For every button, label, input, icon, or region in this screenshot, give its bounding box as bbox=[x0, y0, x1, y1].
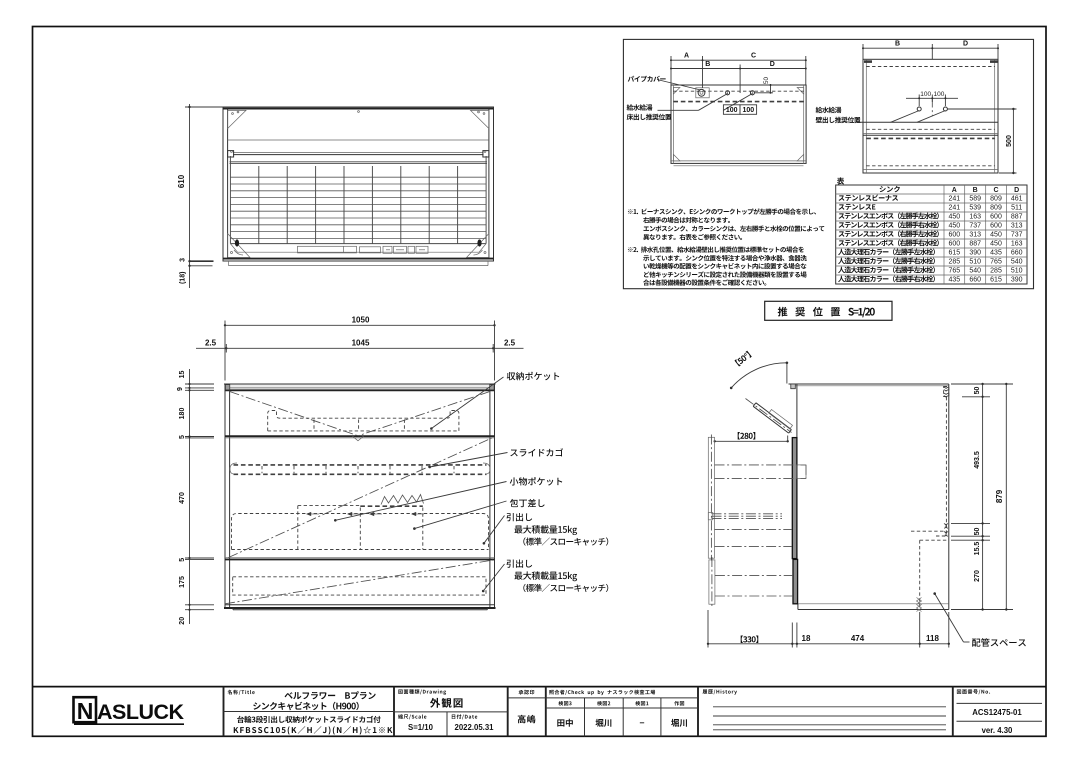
svg-text:470: 470 bbox=[179, 492, 186, 504]
svg-text:510: 510 bbox=[1011, 268, 1023, 275]
svg-text:450: 450 bbox=[990, 232, 1002, 239]
svg-text:493.5: 493.5 bbox=[974, 451, 981, 469]
svg-text:15: 15 bbox=[179, 371, 186, 379]
svg-text:660: 660 bbox=[1011, 250, 1023, 257]
svg-text:589: 589 bbox=[969, 196, 981, 203]
svg-text:50: 50 bbox=[974, 528, 981, 536]
svg-text:737: 737 bbox=[969, 223, 981, 230]
svg-text:285: 285 bbox=[948, 259, 960, 266]
svg-text:18: 18 bbox=[802, 634, 811, 643]
svg-text:50: 50 bbox=[974, 387, 981, 395]
svg-text:879: 879 bbox=[995, 489, 1004, 503]
svg-text:B: B bbox=[973, 187, 978, 194]
svg-text:A: A bbox=[952, 187, 957, 194]
svg-text:B: B bbox=[895, 41, 900, 48]
svg-text:511: 511 bbox=[1011, 205, 1022, 212]
svg-text:ACS12475-01: ACS12475-01 bbox=[972, 708, 1022, 717]
svg-text:540: 540 bbox=[1011, 259, 1023, 266]
svg-text:610: 610 bbox=[177, 174, 186, 188]
svg-text:510: 510 bbox=[969, 259, 981, 266]
svg-text:2.5: 2.5 bbox=[504, 339, 516, 348]
svg-text:5: 5 bbox=[179, 558, 186, 562]
svg-text:435: 435 bbox=[948, 277, 960, 284]
svg-text:615: 615 bbox=[990, 277, 1002, 284]
svg-text:9: 9 bbox=[177, 387, 184, 391]
svg-text:450: 450 bbox=[948, 214, 960, 221]
svg-text:20: 20 bbox=[179, 617, 186, 625]
svg-text:500: 500 bbox=[1006, 135, 1013, 147]
svg-text:600: 600 bbox=[990, 214, 1002, 221]
svg-text:450: 450 bbox=[990, 241, 1002, 248]
svg-text:180: 180 bbox=[179, 408, 186, 420]
svg-text:737: 737 bbox=[1011, 232, 1023, 239]
svg-text:285: 285 bbox=[990, 268, 1002, 275]
svg-text:474: 474 bbox=[851, 634, 865, 643]
svg-text:100: 100 bbox=[920, 91, 931, 98]
svg-text:C: C bbox=[993, 187, 998, 194]
svg-text:163: 163 bbox=[1011, 241, 1023, 248]
svg-text:D: D bbox=[963, 41, 968, 48]
svg-text:600: 600 bbox=[990, 223, 1002, 230]
svg-text:1045: 1045 bbox=[352, 339, 370, 348]
svg-text:600: 600 bbox=[948, 241, 960, 248]
svg-text:390: 390 bbox=[1011, 277, 1023, 284]
svg-text:887: 887 bbox=[1011, 214, 1023, 221]
svg-text:2022.05.31: 2022.05.31 bbox=[454, 723, 494, 732]
svg-text:390: 390 bbox=[969, 250, 981, 257]
svg-text:5: 5 bbox=[179, 435, 186, 439]
svg-text:461: 461 bbox=[1011, 196, 1023, 203]
svg-text:A: A bbox=[684, 53, 689, 60]
svg-text:3: 3 bbox=[180, 258, 187, 262]
svg-text:N: N bbox=[77, 698, 94, 724]
svg-text:100: 100 bbox=[726, 107, 738, 114]
svg-text:C: C bbox=[751, 53, 756, 60]
svg-text:765: 765 bbox=[990, 259, 1002, 266]
svg-text:1050: 1050 bbox=[352, 315, 370, 324]
svg-text:809: 809 bbox=[990, 196, 1002, 203]
svg-text:600: 600 bbox=[948, 232, 960, 239]
svg-text:100: 100 bbox=[933, 91, 944, 98]
svg-text:118: 118 bbox=[926, 634, 939, 643]
svg-text:765: 765 bbox=[948, 268, 960, 275]
svg-text:ASLUCK: ASLUCK bbox=[97, 700, 185, 724]
svg-text:435: 435 bbox=[990, 250, 1002, 257]
svg-text:887: 887 bbox=[969, 241, 981, 248]
svg-text:313: 313 bbox=[1011, 223, 1023, 230]
svg-text:B: B bbox=[705, 61, 710, 68]
svg-text:2.5: 2.5 bbox=[205, 339, 217, 348]
svg-text:175: 175 bbox=[179, 576, 186, 588]
svg-text:450: 450 bbox=[948, 223, 960, 230]
svg-text:(18): (18) bbox=[180, 272, 187, 284]
svg-text:241: 241 bbox=[948, 205, 960, 212]
svg-text:539: 539 bbox=[969, 205, 981, 212]
svg-text:163: 163 bbox=[969, 214, 981, 221]
svg-text:615: 615 bbox=[948, 250, 960, 257]
svg-text:100: 100 bbox=[742, 107, 754, 114]
svg-text:50: 50 bbox=[763, 77, 770, 84]
svg-text:D: D bbox=[770, 61, 775, 68]
svg-text:540: 540 bbox=[969, 268, 981, 275]
svg-text:270: 270 bbox=[974, 570, 981, 582]
svg-text:660: 660 bbox=[969, 277, 981, 284]
svg-text:S=1/10: S=1/10 bbox=[408, 723, 434, 732]
svg-text:241: 241 bbox=[948, 196, 960, 203]
svg-text:313: 313 bbox=[969, 232, 981, 239]
svg-text:D: D bbox=[1014, 187, 1019, 194]
svg-text:809: 809 bbox=[990, 205, 1002, 212]
svg-text:ver. 4.30: ver. 4.30 bbox=[982, 726, 1013, 735]
svg-text:15.5: 15.5 bbox=[974, 542, 981, 556]
